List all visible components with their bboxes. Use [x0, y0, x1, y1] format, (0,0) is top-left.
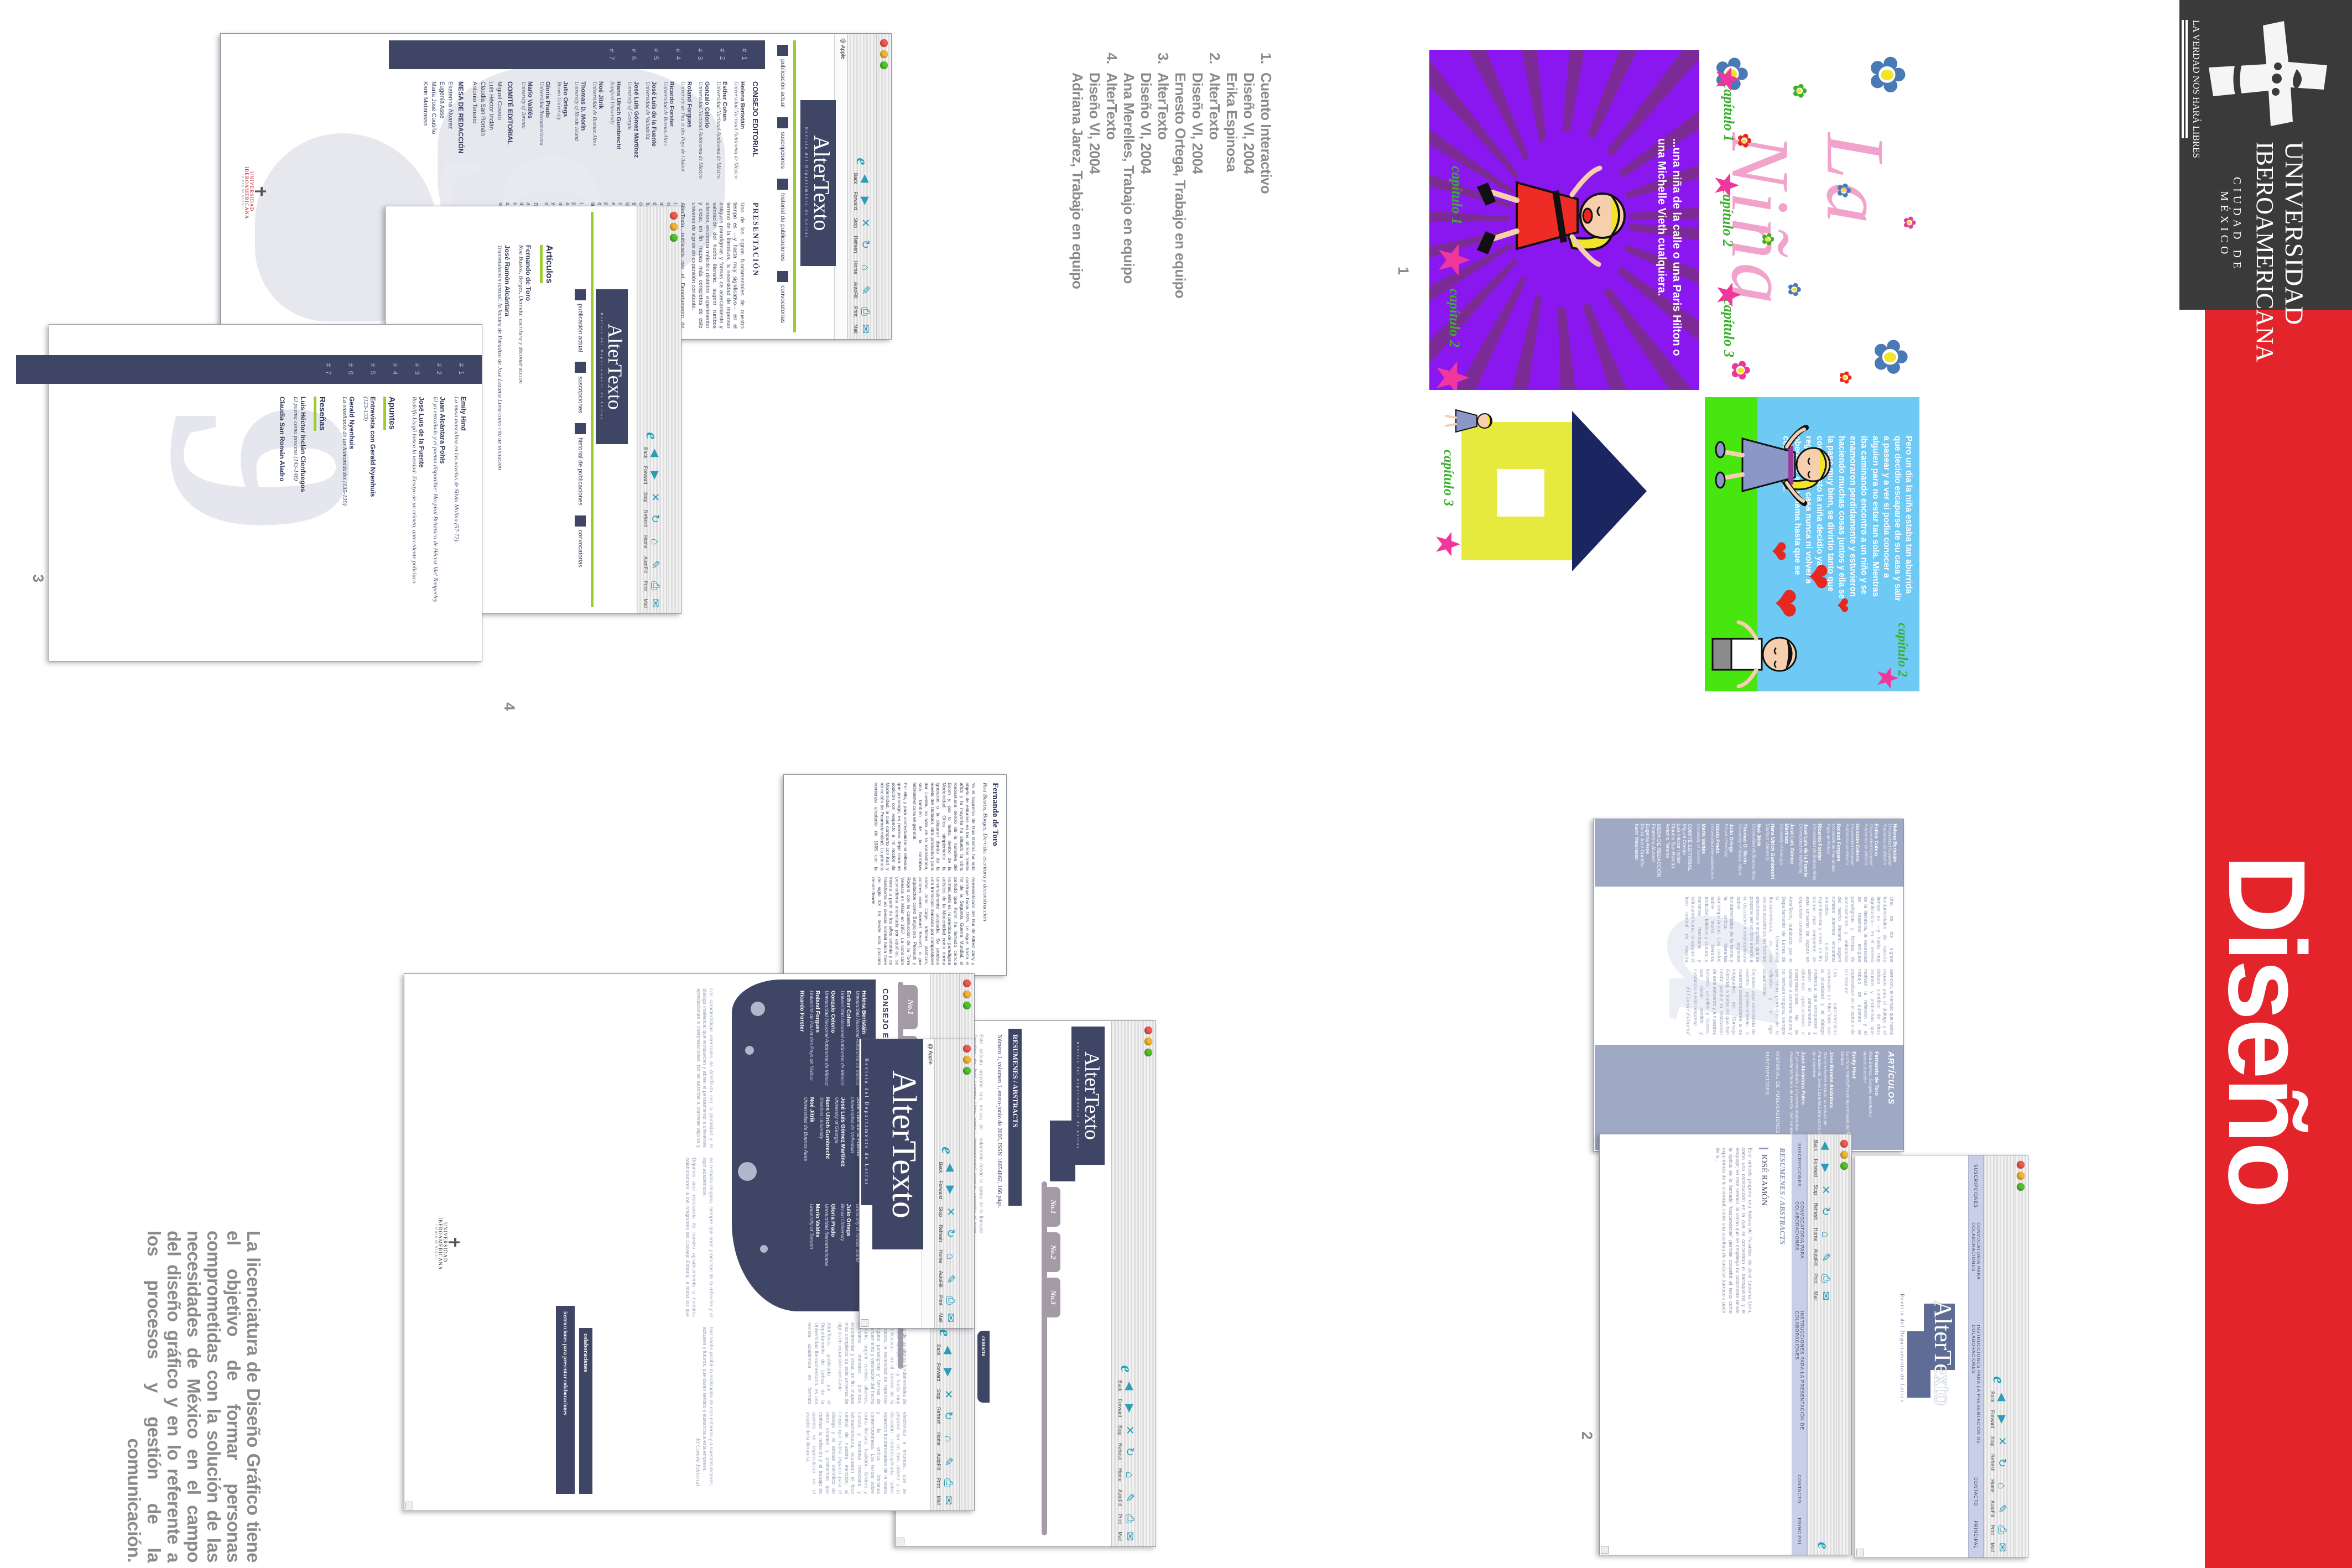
presentation-text: Dejamos aquí constancia de nuestro agrad…	[1692, 969, 1756, 1035]
zoom-button[interactable]	[670, 234, 678, 242]
ie-logo-icon: e	[642, 432, 661, 439]
ie-logo-icon: e	[938, 1147, 956, 1154]
flower-icon: ✿	[1790, 83, 1809, 99]
project-list-line: 4.AlterTexto	[1103, 53, 1120, 451]
issue-sidebar: # 1# 2# 3# 4# 5# 6# 7	[389, 40, 765, 69]
comite-member: Luis Héctor Inclán	[488, 81, 495, 192]
zoom-button[interactable]	[1144, 1049, 1152, 1056]
university-header: LA VERDAD NOS HARÁ LIBRES UNIVERSIDAD IB…	[2179, 0, 2352, 310]
flower-icon: ✿	[1735, 133, 1753, 149]
minimize-button[interactable]	[2017, 1172, 2025, 1180]
toolbar-button[interactable]: ◀Back	[1813, 1140, 1831, 1151]
project-list-line: Diseño VI, 2004	[1086, 53, 1103, 451]
project-list-line: Diseño VI, 2004	[1240, 53, 1257, 451]
issue-link[interactable]: # 2	[719, 49, 726, 61]
editorial-member: Julio OrtegaBrown University	[556, 81, 569, 192]
flower-icon: ✿	[1836, 371, 1853, 384]
menu-item[interactable]: CONTACTO	[1974, 1477, 1979, 1506]
heart-icon: ❤	[1799, 563, 1836, 590]
chapter-link-1[interactable]: capítulo 1	[1720, 83, 1737, 142]
toolbar-button[interactable]: ↻Refresh	[853, 236, 871, 253]
project-index-list: 1.Cuento Interactivo Diseño VI, 2004 Eri…	[1069, 53, 1274, 451]
toc-entry[interactable]: Gerald NyenhuisLa enseñanza de las human…	[341, 397, 356, 640]
toolbar-button[interactable]: ◀Back	[936, 1345, 954, 1356]
portfolio-page: LA VERDAD NOS HARÁ LIBRES UNIVERSIDAD IB…	[0, 0, 2352, 1568]
window-titlebar[interactable]	[876, 34, 891, 339]
girl-character	[1715, 425, 1836, 508]
issue-info-line: Número 1, volumen 1, enero-junio de 2003…	[996, 1034, 1003, 1208]
editorial-column: Helena BeristáinUniversidad Nacional Aut…	[1595, 819, 1903, 887]
toolbar-button[interactable]: ✕Stop	[1813, 1185, 1831, 1195]
project-list-line: Diseño VI, 2004	[1189, 53, 1206, 451]
issue-link[interactable]: # 1	[741, 49, 748, 61]
toolbar-button[interactable]: ▶Forward	[1990, 1410, 2007, 1429]
toolbar-button[interactable]: ✉Mail	[1990, 1543, 2007, 1552]
issue-tab[interactable]: No.1	[902, 985, 918, 1029]
resize-grip[interactable]	[861, 1319, 868, 1327]
toc-entry[interactable]: Emily HindLa musa masculina en las novel…	[453, 397, 467, 640]
menu-colaboraciones[interactable]: colaboraciones	[579, 1328, 592, 1494]
toolbar-button[interactable]: ✉Mail	[643, 598, 660, 608]
jumping-girl-character	[1472, 160, 1633, 277]
heart-icon: ❤	[1764, 541, 1792, 561]
flower-icon: ✿	[1786, 282, 1803, 297]
nav-icon	[575, 289, 586, 300]
toc-entry[interactable]: Juan Alcántara PohlsEl yo extrañado y el…	[432, 397, 446, 640]
editorial-member: Gloria PradoUniversidad Iberoamericana	[538, 81, 551, 192]
toolbar-button[interactable]: ✎AutoFill	[853, 282, 871, 299]
minimize-button[interactable]	[963, 991, 971, 998]
minimize-button[interactable]	[1144, 1038, 1152, 1045]
resize-grip[interactable]	[1601, 1546, 1609, 1554]
toolbar-button[interactable]: ✉Mail	[1813, 1291, 1831, 1301]
toolbar-button[interactable]: ⎙Print	[853, 306, 871, 317]
browser-window-principal[interactable]: e ◀Back▶Forward✕Stop↻Refresh⌂Home✎AutoFi…	[1855, 1155, 2028, 1558]
toolbar-button[interactable]: ▶Forward	[938, 1181, 956, 1199]
nav-icon	[777, 179, 788, 190]
minimize-button[interactable]	[1840, 1151, 1848, 1159]
editorial-member: Noé JitrikUniversidad de Buenos Aires	[591, 81, 604, 192]
issue-link[interactable]: # 1	[457, 363, 465, 376]
heart-icon: ❤	[1763, 588, 1806, 618]
editorial-member: Gonzalo CelorioUniversidad Nacional Autó…	[824, 991, 836, 1087]
close-button[interactable]	[670, 212, 678, 220]
logo-block	[1907, 1331, 1930, 1398]
toolbar-button[interactable]: ⎙Print	[643, 581, 660, 591]
browser-toolbar: e ◀Back▶Forward✕Stop↻Refresh⌂Home✎AutoFi…	[1984, 1155, 2013, 1557]
kids-story-illustration: Pero un dia la niña estaba tan aburrida …	[1705, 397, 1919, 691]
toolbar-button[interactable]: ✎AutoFill	[1990, 1501, 2007, 1517]
toc-entry[interactable]: José Luis de la FuenteRodolfo Usigli bus…	[411, 397, 425, 640]
nav-item[interactable]: historial de publicaciones	[575, 423, 586, 506]
editorial-member: Hans Ulrich GumbrechtStanford University	[609, 81, 622, 192]
uia-cross-icon	[449, 1238, 460, 1247]
resize-grip[interactable]	[405, 1502, 413, 1509]
altertexto-masthead-large: AlterTexto	[872, 1039, 923, 1249]
nav-item[interactable]: suscripciones	[777, 117, 788, 169]
toolbar-button[interactable]: ✎AutoFill	[938, 1271, 956, 1288]
mesa-member: María José Coutiño	[430, 81, 437, 192]
toc-entry[interactable]: Claudia San Román Aladro	[278, 397, 286, 640]
articulos-heading: Artículos	[540, 245, 554, 283]
toolbar-button[interactable]: ⎙Print	[938, 1295, 956, 1306]
house-roof	[1572, 411, 1647, 571]
issue-link[interactable]: # 4	[391, 363, 399, 376]
address-favorites[interactable]: @ Apple	[840, 38, 846, 59]
toolbar-button[interactable]: ◀Back	[1117, 1381, 1135, 1392]
menu-instrucciones[interactable]: instrucciones para presentar colaboracio…	[556, 1306, 575, 1494]
nav-icon	[575, 515, 586, 527]
toolbar-button[interactable]: ⌂Home	[938, 1250, 956, 1263]
toolbar-button[interactable]: ✎AutoFill	[1813, 1249, 1831, 1265]
site-menu-bar: SUSCRIPCIONESCONVOCATORIA PARA COLABORAC…	[1792, 1134, 1807, 1555]
toolbar-button[interactable]: ✕Stop	[1117, 1425, 1135, 1436]
menu-item[interactable]: PRINCIPAL	[1797, 1518, 1802, 1546]
toolbar-button[interactable]: ▶Forward	[853, 192, 871, 210]
motto-rule	[2182, 20, 2184, 138]
page-marker-4: 4	[501, 702, 518, 711]
browser-toolbar: ◀Back▶Forward✕Stop↻Refresh⌂Home✎AutoFill…	[1807, 1134, 1836, 1555]
toolbar-button[interactable]: ⎙Print	[1117, 1514, 1135, 1524]
toolbar-button[interactable]: ⌂Home	[853, 261, 871, 274]
page-capture-contents: 9 # 1# 2# 3# 4# 5# 6# 7 Emily HindLa mus…	[49, 324, 482, 661]
nav-item[interactable]: convocatorias	[777, 271, 788, 323]
chapter-link-1[interactable]: capítulo 1	[1448, 166, 1465, 225]
resumenes-bar: RESUMENES / ABSTRACTS	[1008, 1029, 1022, 1206]
editorial-member: Roland ForguesUniversité de Pau et des P…	[809, 991, 820, 1087]
presentation-text: Las características esenciales de AlterT…	[1761, 969, 1838, 1035]
article-link[interactable]: Emily HindLa musa masculina en las novel…	[1840, 1051, 1857, 1143]
flower-icon: ✿	[1834, 183, 1853, 199]
close-button[interactable]	[1840, 1140, 1848, 1148]
editorial-member: José Luis Gómez MartínezUniversity of Ge…	[834, 1097, 846, 1194]
toolbar-button[interactable]: ✎AutoFill	[643, 556, 660, 573]
mesa-heading: MESA DE REDACCIÓN	[457, 81, 465, 192]
uia-mini-logo: UNIVERSIDADIBEROAMERICANACIUDAD DE MÉXIC…	[434, 1217, 460, 1267]
flower-icon: ✿	[1863, 54, 1912, 95]
altertexto-masthead: AlterTexto Revista del Departamento de L…	[800, 100, 836, 266]
close-button[interactable]	[963, 1045, 971, 1053]
issue-link[interactable]: # 7	[608, 49, 616, 61]
editorial-member: Noé JitrikUniversidad de Buenos Aires	[803, 1097, 815, 1194]
toolbar-button[interactable]: ✕Stop	[853, 218, 871, 228]
nav-historial[interactable]: HISTORIAL DE PUBLICACIONES	[1775, 1051, 1780, 1143]
editorial-member: Gonzalo CelorioUniversidad Nacional Autó…	[698, 81, 710, 192]
minimize-button[interactable]	[963, 1056, 971, 1064]
article-link[interactable]: Fernando de ToroRoa Bastos, Borges, Derr…	[518, 245, 532, 555]
uia-mini-logo: UNIVERSIDADIBEROAMERICANACIUDAD DE MÉXIC…	[241, 166, 266, 216]
article-body: Yo el Supremo de Roa Bastos ha sido obje…	[912, 783, 976, 871]
issue-link[interactable]: # 6	[630, 49, 638, 61]
toolbar-button[interactable]: ▶Forward	[1813, 1159, 1831, 1177]
menu-item[interactable]: SUSCRIPCIONES	[1797, 1143, 1802, 1187]
nav-item[interactable]: publicación actual	[777, 45, 788, 107]
toolbar-button[interactable]: ✕Stop	[643, 492, 660, 503]
project-list-line: Erika Espinosa	[1223, 53, 1240, 451]
project-list-line: Adriana Jarez, Trabajo en equipo	[1069, 53, 1086, 451]
toc-entry[interactable]: Luis Héctor Inclán CienfuegosEl poema co…	[293, 397, 307, 640]
close-button[interactable]	[880, 39, 888, 47]
toc-entry[interactable]: Entrevista con Gerald Nyenhuis(123-133)	[362, 397, 377, 640]
zoom-button[interactable]	[880, 61, 888, 69]
toolbar-button[interactable]: ✉Mail	[1117, 1531, 1135, 1541]
star-icon	[1435, 532, 1460, 557]
signature: El Comité Editorial	[1685, 969, 1692, 1035]
ie-logo-icon: e	[1117, 1365, 1136, 1372]
editorial-member: Esther CohenUniversidad Nacional Autónom…	[715, 81, 728, 192]
menu-item[interactable]: CONVOCATORIA PARA COLABORACIONES	[1971, 1222, 1981, 1310]
minimize-button[interactable]	[670, 223, 678, 231]
close-button[interactable]	[2017, 1161, 2025, 1169]
editorial-member: Esther CohenUniversidad Nacional Autónom…	[840, 991, 851, 1087]
close-button[interactable]	[963, 980, 971, 987]
issue-link[interactable]: # 3	[413, 363, 421, 376]
purple-girl-illustration: ...una niña de la calle o una Paris Hilt…	[1429, 50, 1699, 390]
site-menu-bar: SUSCRIPCIONESCONVOCATORIA PARA COLABORAC…	[1968, 1155, 1984, 1557]
presentation-text: Uno de los signos fundamentales de nuest…	[1798, 897, 1895, 962]
address-bar[interactable]: @ Apple	[922, 1039, 934, 1328]
menu-item[interactable]: SUSCRIPCIONES	[1974, 1164, 1979, 1208]
issue-link[interactable]: # 2	[435, 363, 443, 376]
article-author: Fernando de Toro	[990, 783, 1000, 965]
masthead-block	[1050, 1121, 1075, 1181]
editorial-member: Julio OrtegaBrown University	[840, 1204, 851, 1300]
resize-grip[interactable]	[1856, 1549, 1864, 1556]
editorial-member: Ricardo ForsterUniversidad de Buenos Air…	[662, 81, 675, 192]
altertexto-logo: AlterTexto	[1929, 1300, 1957, 1405]
program-description: La licenciatura de Diseño Gráfico tiene …	[124, 1231, 263, 1562]
toolbar-button[interactable]: ⎙Print	[1813, 1273, 1831, 1284]
close-button[interactable]	[1144, 1027, 1152, 1034]
la-nina-cover-illustration: La Niña ✿ ✿ ✿ ✿ ✿ ✿ ✿ ✿ ✿ ✿ ✿ capítulo 1…	[1705, 50, 1919, 393]
comite-member: Claudia San Román	[480, 81, 486, 192]
zoom-button[interactable]	[2017, 1183, 2025, 1191]
mesa-member: Eugenia Asse	[439, 81, 445, 192]
comite-member: Antonio Tenorio	[471, 81, 478, 192]
project-list-line: Ernesto Ortega, Trabajo en equipo	[1172, 53, 1189, 451]
university-name-line1: UNIVERSIDAD	[2279, 142, 2309, 308]
boy-character	[1705, 616, 1801, 691]
window-titlebar[interactable]	[1141, 1021, 1156, 1546]
page-title: Diseño Gráfico	[2079, 855, 2330, 1568]
abstract-text: Este artículo propone una lectura de Par…	[1714, 1148, 1753, 1314]
articles-heading: ARTÍCULOS	[1886, 1051, 1896, 1143]
flower-icon: ✿	[1867, 337, 1914, 376]
presentacion-heading: PRESENTACIÓN	[751, 202, 759, 329]
toolbar-button[interactable]: ✎AutoFill	[1117, 1489, 1135, 1506]
issue-tab[interactable]: No.1	[1046, 1187, 1060, 1227]
consejo-heading: CONSEJO EDITORIAL	[751, 81, 759, 192]
toolbar-button[interactable]: ↻Refresh	[643, 510, 660, 528]
nav-item[interactable]: suscripciones	[575, 362, 586, 413]
zoom-button[interactable]	[1840, 1162, 1848, 1170]
editorial-member: Gloria PradoUniversidad Iberoamericana	[824, 1204, 836, 1300]
toolbar-button[interactable]: ✉Mail	[936, 1496, 954, 1505]
toolbar-button[interactable]: ↻Refresh	[938, 1225, 956, 1242]
green-rule	[793, 40, 796, 332]
abstract-author: JOSÉ RAMÓN	[1759, 1148, 1768, 1206]
page-marker-2: 2	[1578, 1431, 1595, 1440]
toolbar-button[interactable]: ✎AutoFill	[936, 1454, 954, 1470]
resize-grip[interactable]	[897, 1538, 904, 1545]
site-nav: publicación actualsuscripcioneshistorial…	[575, 289, 586, 567]
consejo-panel: Helena BeristáinUniversidad Nacional Aut…	[732, 980, 876, 1311]
toolbar-button[interactable]: ↻Refresh	[1813, 1203, 1831, 1221]
small-girl-character	[1442, 404, 1495, 437]
toolbar-button[interactable]: ✉Mail	[938, 1313, 956, 1322]
nav-icon	[575, 362, 586, 373]
editorial-member: José Luis de la FuenteUniversidad de Val…	[644, 81, 657, 192]
toolbar-button[interactable]: ▶Forward	[1117, 1399, 1135, 1418]
toolbar-button[interactable]: ◀Back	[643, 447, 660, 459]
article-link[interactable]: Jose Ramón AlcántaraTransmutación textua…	[1812, 1051, 1834, 1143]
editorial-member: Hans Ulrich GumbrechtStanford University	[819, 1097, 830, 1194]
browser-window-cover[interactable]: e ◀Back▶Forward✕Stop↻Refresh⌂Home✎AutoFi…	[859, 1039, 975, 1329]
issue-sidebar: # 1# 2# 3# 4# 5# 6# 7	[16, 355, 482, 384]
issue-link[interactable]: # 6	[347, 363, 355, 376]
toolbar-button[interactable]: ▶Forward	[643, 466, 660, 485]
toolbar-button[interactable]: ◀Back	[938, 1162, 956, 1173]
issue-link[interactable]: # 4	[674, 49, 682, 61]
flower-icon: ✿	[1901, 216, 1917, 230]
issue-link[interactable]: # 7	[325, 363, 332, 376]
toolbar-button[interactable]: ◀Back	[1990, 1392, 2007, 1403]
issue-tab[interactable]: No.2	[1046, 1232, 1060, 1272]
altertexto-page-capture: a Helena BeristáinUniversidad Nacional A…	[1593, 819, 1904, 1152]
toolbar-button[interactable]: ↻Refresh	[1990, 1454, 2007, 1472]
flower-icon: ✿	[1759, 232, 1776, 246]
flower-icon: ✿	[1728, 360, 1753, 381]
toolbar-button[interactable]: ▶Forward	[936, 1363, 954, 1382]
masthead-tagline-bar: Revista del Departamento de Letras	[861, 1039, 872, 1205]
nav-item[interactable]: publicación actual	[575, 289, 586, 352]
university-motto: LA VERDAD NOS HARÁ LIBRES	[2190, 20, 2202, 142]
presentacion-paragraph: Uno de los signos fundamentales de nuest…	[690, 202, 745, 329]
window-titlebar[interactable]	[2013, 1155, 2028, 1557]
altertexto-masthead: AlterTexto Revista del Departamento de L…	[596, 289, 628, 444]
site-nav: publicación actualsuscripcioneshistorial…	[777, 45, 788, 323]
page-marker-3: 3	[29, 574, 46, 582]
toolbar-button[interactable]: ⌂Home	[936, 1432, 954, 1446]
window-titlebar[interactable]	[959, 1039, 974, 1328]
house-window	[1497, 469, 1544, 517]
chapter-link-2[interactable]: capítulo 2	[1446, 289, 1463, 347]
editorial-member: Helena BeristáinUniversidad Nacional Aut…	[733, 81, 746, 192]
article-link[interactable]: Juan Alcántara PohlsEl yo extrañado y el…	[1789, 1051, 1806, 1143]
project-list-line: Diseño VI, 2004	[1137, 53, 1154, 451]
university-name-line2: IBEROAMERICANA	[2251, 142, 2279, 308]
page-capture-article: Fernando de Toro Roa Bastos, Borges, Der…	[783, 774, 1007, 976]
project-list-line: 2.AlterTexto	[1206, 53, 1223, 451]
browser-toolbar: e ◀Back▶Forward✕Stop↻Refresh⌂Home✎AutoFi…	[1111, 1021, 1141, 1546]
toolbar-button[interactable]: ✉Mail	[853, 324, 871, 334]
toolbar-button[interactable]: ⌂Home	[1117, 1468, 1135, 1482]
nav-icon	[777, 117, 788, 128]
browser-window-abstracts[interactable]: ◀Back▶Forward✕Stop↻Refresh⌂Home✎AutoFill…	[1599, 1134, 1852, 1555]
window-titlebar[interactable]	[1836, 1134, 1851, 1555]
toolbar-button[interactable]: ↻Refresh	[936, 1407, 954, 1425]
nav-suscripciones[interactable]: SUSCRIPCIONES	[1765, 1051, 1770, 1143]
comite-member: Miguel Cossío	[496, 81, 503, 192]
signature: El Comité Editorial	[695, 1327, 701, 1486]
issue-link[interactable]: # 3	[696, 49, 704, 61]
ie-logo-icon: e	[852, 158, 871, 165]
issue-link[interactable]: # 5	[369, 363, 377, 376]
altertexto-masthead: AlterTexto Revista del Departamento de L…	[1071, 1027, 1105, 1165]
menu-item[interactable]: INSTRUCCIONES PARA LA PRESENTACIÓN DE CO…	[1794, 1311, 1804, 1460]
browser-toolbar: e ◀Back▶Forward✕Stop↻Refresh⌂Home✎AutoFi…	[637, 206, 666, 613]
editorial-member: Mario ValdésUniversity of Toronto	[809, 1204, 820, 1300]
uia-cross-icon	[255, 187, 266, 196]
chapter-label[interactable]: capítulo 2	[1895, 623, 1909, 677]
menu-item[interactable]: PRINCIPAL	[1974, 1520, 1979, 1549]
zoom-button[interactable]	[963, 1002, 971, 1009]
comite-heading: COMITÉ EDITORIAL	[506, 81, 514, 192]
nav-icon	[575, 423, 586, 434]
address-bar[interactable]: @ Apple	[834, 34, 847, 339]
editorial-member: Thomas D. MorinUniversity of Rhode Islan…	[574, 81, 586, 192]
toolbar-button[interactable]: ✕Stop	[936, 1389, 954, 1400]
project-list-line: 1.Cuento Interactivo	[1257, 53, 1274, 451]
browser-toolbar: e ◀Back▶Forward✕Stop↻Refresh⌂Home✎AutoFi…	[847, 34, 876, 339]
menu-item[interactable]: CONTACTO	[1797, 1475, 1802, 1503]
issue-tab[interactable]: No.3	[1046, 1278, 1060, 1317]
resenas-heading: Reseñas	[314, 397, 327, 431]
editorial-member: Mario ValdésUniversity of Toronto	[521, 81, 533, 192]
chapter-link[interactable]: capítulo 3	[1440, 450, 1456, 506]
apuntes-heading: Apuntes	[383, 397, 397, 430]
toolbar-button[interactable]: ✕Stop	[1990, 1436, 2007, 1447]
issue-link[interactable]: # 5	[652, 49, 660, 61]
green-rule	[591, 212, 594, 607]
toolbar-button[interactable]: ✕Stop	[938, 1207, 956, 1217]
menu-item[interactable]: CONVOCATORIA PARA COLABORACIONES	[1794, 1201, 1804, 1296]
project-list-line: Ana Merelles, Trabajo en equipo	[1120, 53, 1137, 451]
house-illustration: capítulo 3	[1429, 400, 1699, 581]
ibero-woodcut-logo-icon	[2205, 17, 2330, 138]
nav-icon	[777, 271, 788, 282]
toolbar-button[interactable]: ⌂Home	[1813, 1228, 1831, 1241]
contacto-tab[interactable]: contacto	[977, 1331, 990, 1403]
menu-item[interactable]: INSTRUCCIONES PARA LA PRESENTACIÓN DE CO…	[1971, 1325, 1981, 1463]
chapter-link-2[interactable]: capítulo 2	[1719, 188, 1736, 247]
altertexto-tagline: Revista del Departamento de Letras	[1900, 1294, 1905, 1403]
nav-item[interactable]: historial de publicaciones	[777, 179, 788, 261]
article-link[interactable]: José Ramón AlcántaraTransmutación textua…	[497, 245, 511, 555]
nav-item[interactable]: convocatorias	[575, 515, 586, 567]
presentation-text: Uno de los signos fundamentales de nuest…	[836, 1322, 908, 1404]
ie-logo-icon: e	[935, 1329, 954, 1336]
chapter-link-3[interactable]: capítulo 3	[1720, 299, 1737, 357]
article-subtitle: Roa Bastos, Borges, Derrida: escritura y…	[982, 783, 988, 965]
toolbar-button[interactable]: ⎙Print	[1990, 1525, 2007, 1535]
toolbar-button[interactable]: ◀Back	[853, 173, 871, 184]
address-favorites[interactable]: @ Apple	[927, 1044, 933, 1065]
window-titlebar[interactable]	[666, 206, 681, 613]
minimize-button[interactable]	[880, 50, 888, 58]
nav-icon	[777, 45, 788, 56]
browser-toolbar: e ◀Back▶Forward✕Stop↻Refresh⌂Home✎AutoFi…	[934, 1039, 959, 1328]
toolbar-button[interactable]: ↻Refresh	[1117, 1443, 1135, 1461]
rotated-page-stage: LA VERDAD NOS HARÁ LIBRES UNIVERSIDAD IB…	[0, 0, 2352, 1568]
toolbar-button[interactable]: ⌂Home	[1990, 1480, 2007, 1493]
ie-logo-icon: e	[1814, 1542, 1833, 1549]
zoom-button[interactable]	[963, 1067, 971, 1075]
toolbar-button[interactable]: ⌂Home	[643, 535, 660, 549]
toolbar-button[interactable]: ⎙Print	[936, 1478, 954, 1488]
page-marker-1: 1	[1394, 267, 1412, 275]
article-link[interactable]: Fernando de ToroRoa Bastos, Borges, escr…	[1862, 1051, 1880, 1143]
